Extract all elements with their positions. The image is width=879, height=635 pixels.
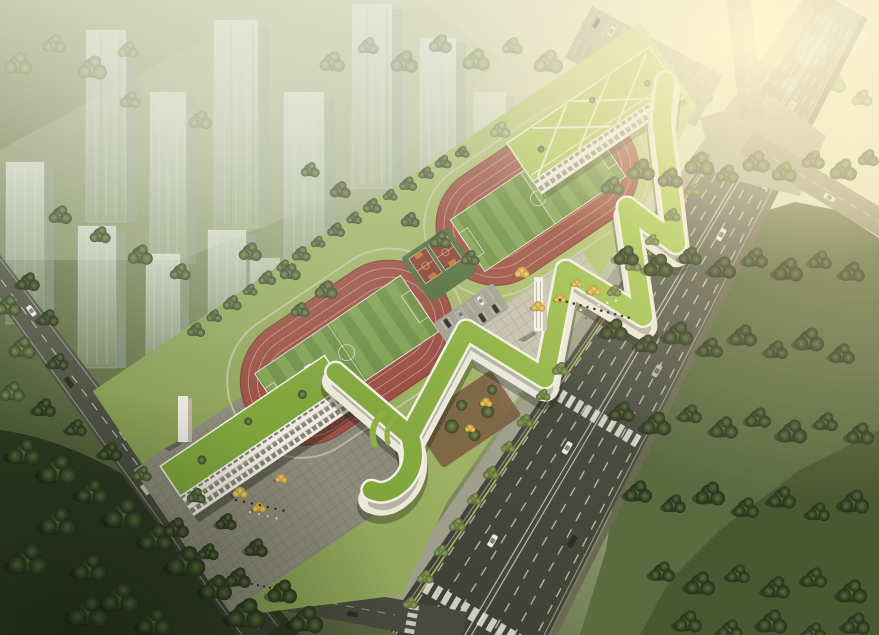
vignette-overlay: [0, 0, 879, 635]
aerial-campus-rendering: [0, 0, 879, 635]
rendering-canvas: [0, 0, 879, 635]
